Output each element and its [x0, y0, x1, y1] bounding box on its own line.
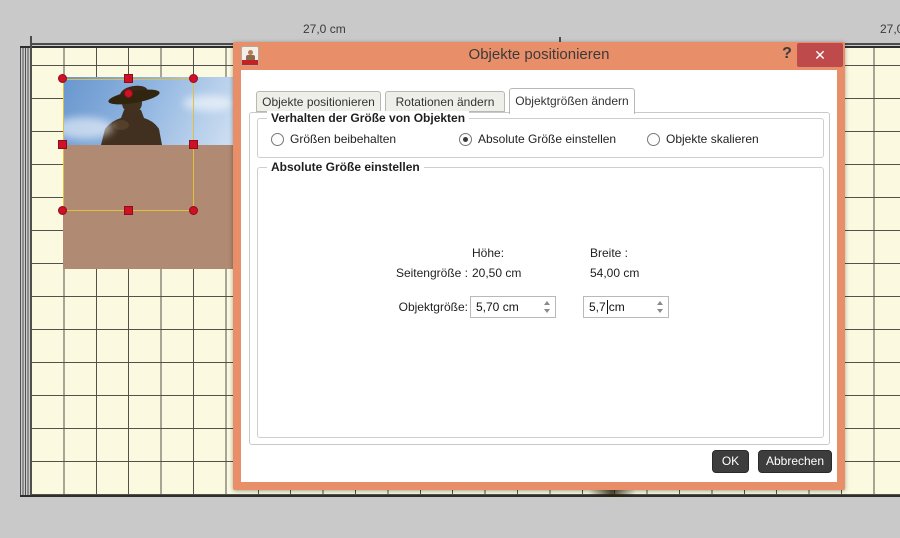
selection-handle-top-middle[interactable]: [124, 74, 133, 83]
spinner-arrows[interactable]: [652, 297, 668, 317]
radio-circle: [647, 133, 660, 146]
help-button[interactable]: ?: [777, 45, 797, 67]
ok-button[interactable]: OK: [712, 450, 749, 473]
tab-objekte-positionieren[interactable]: Objekte positionieren: [256, 91, 381, 112]
selection-handle-top-left[interactable]: [58, 74, 67, 83]
selection-handle-bottom-right[interactable]: [189, 206, 198, 215]
page-size-label: Seitengröße :: [341, 266, 468, 280]
tab-objektgroessen-aendern[interactable]: Objektgrößen ändern: [509, 88, 635, 114]
position-objects-dialog: Objekte positionieren ? ✕ Objekte positi…: [233, 42, 845, 490]
page-binding-edge: [20, 46, 31, 497]
radio-groessen-beibehalten[interactable]: Größen beibehalten: [271, 132, 396, 146]
object-width-input[interactable]: 5,7cm: [584, 300, 652, 314]
object-height-spinner[interactable]: 5,70 cm: [470, 296, 556, 318]
dialog-title: Objekte positionieren: [233, 46, 845, 63]
ruler-tick: [30, 36, 32, 48]
selection-handle-middle-left[interactable]: [58, 140, 67, 149]
editor-canvas: 27,0 cm 27,0 cm Objekte pos: [0, 0, 900, 538]
ruler-label-right: 27,0 cm: [880, 22, 900, 36]
dialog-client-area: Objekte positionieren Rotationen ändern …: [241, 70, 837, 482]
behavior-group-title: Verhalten der Größe von Objekten: [267, 111, 469, 125]
selection-handle-top-right[interactable]: [189, 74, 198, 83]
ruler-label-left: 27,0 cm: [303, 22, 346, 36]
selection-handle-bottom-left[interactable]: [58, 206, 67, 215]
height-column-label: Höhe:: [472, 246, 504, 260]
radio-objekte-skalieren[interactable]: Objekte skalieren: [647, 132, 759, 146]
behavior-groupbox: Verhalten der Größe von Objekten Größen …: [257, 118, 824, 158]
text-caret: [607, 300, 608, 314]
close-button[interactable]: ✕: [797, 43, 843, 67]
page-height-value: 20,50 cm: [472, 266, 521, 280]
size-group-title: Absolute Größe einstellen: [267, 160, 424, 174]
object-height-input[interactable]: 5,70 cm: [471, 300, 539, 314]
spin-up-icon[interactable]: [657, 301, 663, 305]
radio-circle: [271, 133, 284, 146]
tab-rotationen-aendern[interactable]: Rotationen ändern: [385, 91, 505, 112]
page-width-value: 54,00 cm: [590, 266, 639, 280]
selection-handle-middle-right[interactable]: [189, 140, 198, 149]
spin-down-icon[interactable]: [544, 309, 550, 313]
object-size-label: Objektgröße:: [341, 300, 468, 314]
radio-absolute-groesse[interactable]: Absolute Größe einstellen: [459, 132, 616, 146]
spin-down-icon[interactable]: [657, 309, 663, 313]
selection-rotation-handle[interactable]: [124, 89, 133, 98]
spinner-arrows[interactable]: [539, 297, 555, 317]
spin-up-icon[interactable]: [544, 301, 550, 305]
cancel-button[interactable]: Abbrechen: [758, 450, 832, 473]
object-selection-outline: [63, 79, 194, 211]
object-width-spinner[interactable]: 5,7cm: [583, 296, 669, 318]
dialog-title-bar[interactable]: Objekte positionieren ? ✕: [233, 42, 845, 70]
width-column-label: Breite :: [590, 246, 628, 260]
selection-handle-bottom-middle[interactable]: [124, 206, 133, 215]
radio-circle: [459, 133, 472, 146]
